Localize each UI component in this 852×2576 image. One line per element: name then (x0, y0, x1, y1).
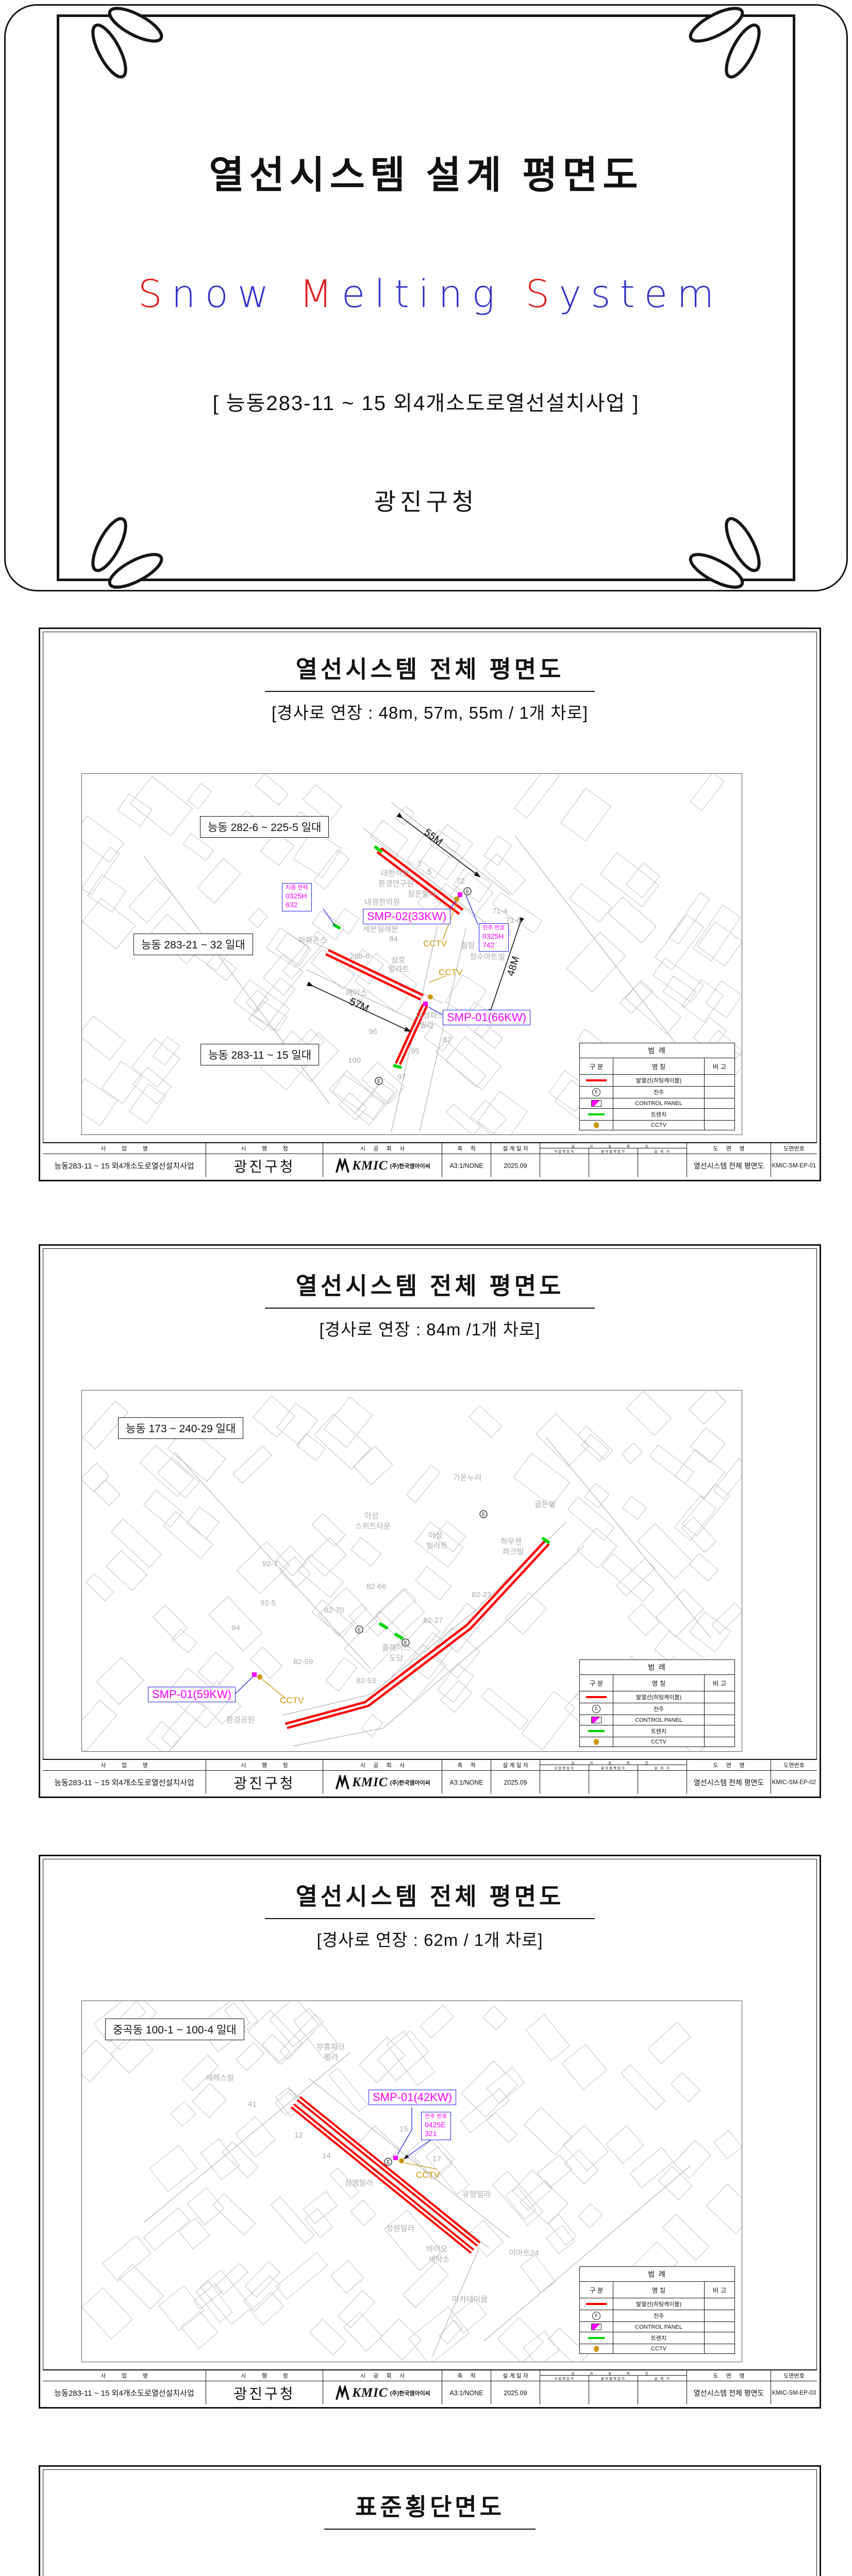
title-block: 사 업 명능동283-11 ~ 15 외4개소도로열선설치사업 시 행 청광진구… (43, 2369, 817, 2404)
control-panel-icon (591, 2324, 602, 2330)
area-label: 중곡동 100-1 ~ 100-4 일대 (105, 2019, 244, 2040)
cctv-symbol (399, 2158, 404, 2163)
map-name: 82-59 (293, 1657, 313, 1666)
subtitle-letter: i (414, 272, 434, 316)
map-name: 빌라트 (388, 963, 409, 974)
map-name: 12 (294, 2131, 303, 2140)
kmic-logo-icon (335, 1158, 350, 1174)
area-label: 능동 282-6 ~ 225-5 일대 (200, 816, 329, 838)
sheet-plan-1: 열선시스템 전체 평면도 [경사로 연장 : 48m, 57m, 55m / 1… (39, 628, 821, 1181)
svg-text:E: E (358, 1628, 361, 1633)
map-name: 삼영빌라 (345, 2177, 373, 2188)
area-label: 능동 283-21 ~ 32 일대 (133, 934, 253, 955)
map-name: 아성 (428, 1530, 443, 1540)
map-name: 이마트24 (509, 2247, 539, 2258)
sheet-title: 열선시스템 전체 평면도 (265, 1878, 595, 1919)
control-panel-icon (591, 1100, 602, 1107)
map-name: 내경한의원 (364, 896, 400, 907)
subtitle-letter: m (672, 272, 719, 316)
subtitle-letter: e (640, 272, 673, 316)
title-block: 사 업 명능동283-11 ~ 15 외4개소도로열선설치사업 시 행 청광진구… (43, 1142, 817, 1177)
smp-label: SMP-01(66KW) (443, 1010, 530, 1025)
title-block: 사 업 명능동283-11 ~ 15 외4개소도로열선설치사업 시 행 청광진구… (43, 1759, 817, 1794)
map-name: 성원빌라 (386, 2223, 414, 2233)
control-panel-symbol (458, 892, 462, 897)
cctv-label: CCTV (439, 968, 462, 978)
map-name: 94 (231, 1623, 240, 1632)
legend-title: 범 례 (580, 1043, 734, 1058)
pole-symbol: E (375, 1077, 382, 1084)
svg-text:E: E (466, 889, 469, 894)
heating-line-icon (586, 1079, 607, 1081)
map-name: 플레이스 (382, 1642, 410, 1653)
map-name: 87 (443, 1036, 452, 1044)
map-name: 97 (397, 1073, 406, 1081)
cover-title: 열선시스템 설계 평면도 (4, 144, 848, 199)
pole-icon: E (592, 2312, 600, 2320)
cctv-symbol (257, 1674, 262, 1680)
trench-icon (588, 2337, 605, 2339)
map-name: 82-66 (366, 1582, 386, 1591)
map-name: 268-6 (350, 952, 370, 961)
map-name: 빌라트 (426, 1540, 447, 1551)
area-label: 능동 283-11 ~ 15 일대 (201, 1044, 319, 1065)
sheet-plan-2: 열선시스템 전체 평면도 [경사로 연장 : 84m /1개 차로] (39, 1244, 821, 1798)
subtitle-letter: n (433, 272, 467, 316)
map-drawing: E E 능동 282-6 ~ 225-5 일대 능동 283-21 ~ 32 일… (81, 773, 742, 1135)
map-name: 15 (399, 2125, 408, 2133)
map-name: 환경연구원 (378, 878, 414, 889)
subtitle-letter: l (370, 272, 390, 316)
map-name: 스위트타운 (355, 1520, 391, 1531)
cover-agency: 광진구청 (4, 483, 848, 517)
map-name: 95 (411, 1047, 420, 1056)
map-drawing: E 중곡동 100-1 ~ 100-4 일대 SMP-01(42KW) 전주 번… (81, 2001, 742, 2362)
legend-title: 범 례 (580, 2267, 734, 2282)
cctv-label: CCTV (416, 2170, 440, 2180)
map-name: 빌라 (324, 2052, 339, 2062)
map-name: 유형빌라 (462, 2189, 491, 2199)
subtitle-letter: g (467, 272, 499, 316)
svg-text:E: E (377, 1079, 380, 1084)
sheet-title: 열선시스템 전체 평면도 (265, 651, 595, 692)
map-name: 세븐일레븐 (363, 923, 398, 934)
pole-icon: E (592, 1088, 600, 1096)
map-name: 96 (369, 1027, 377, 1036)
map-name: 하우젠 (500, 1536, 522, 1547)
smp-label: SMP-01(59KW) (148, 1687, 236, 1702)
sheet-subtitle: [경사로 연장 : 48m, 57m, 55m / 1개 차로] (40, 699, 820, 724)
map-name: 아카데미쿱 (452, 2294, 488, 2304)
map-name: 17 (432, 2155, 441, 2163)
pole-symbol: E (480, 1511, 487, 1518)
map-name: 골든빌 (534, 1499, 556, 1510)
subtitle-letter: e (337, 272, 370, 316)
cctv-icon (594, 1739, 599, 1745)
pole-icon: E (592, 1705, 600, 1713)
sheet-cross-section: 표준횡단면도 (39, 2465, 821, 2576)
control-panel-symbol (423, 1002, 428, 1006)
map-name: 빌라 (420, 1019, 434, 1030)
sheet-title: 열선시스템 전체 평면도 (265, 1267, 595, 1309)
corner-ornament-icon (90, 513, 168, 590)
svg-text:E: E (387, 2160, 390, 2165)
cover-page: 열선시스템 설계 평면도 Snow Melting System [ 능동283… (4, 4, 848, 591)
kmic-logo-icon (335, 2385, 350, 2401)
kmic-logo-icon (335, 1775, 350, 1790)
map-name: 100 (348, 1056, 361, 1065)
heating-cable-lines (291, 2097, 480, 2253)
corner-ornament-icon (90, 6, 168, 83)
map-name: 84 (389, 935, 398, 943)
utility-label: 지중 전력0325H632 (282, 883, 312, 911)
map-name: 파파존스 (298, 935, 327, 945)
map-name: 92-5 (260, 1599, 276, 1607)
map-name: 환경공원 (226, 1714, 255, 1725)
cctv-symbol (428, 994, 433, 999)
map-name: 세탁소 (428, 2253, 449, 2264)
cctv-label: CCTV (423, 939, 447, 949)
map-name: 아성 (364, 1510, 379, 1521)
map-name: 71-4 (492, 907, 508, 916)
pole-symbol: E (385, 2158, 392, 2165)
subtitle-letter: t (390, 272, 414, 316)
control-panel-symbol (393, 2156, 398, 2160)
trench-icon (588, 1113, 605, 1115)
drawing-set-page: 열선시스템 설계 평면도 Snow Melting System [ 능동283… (0, 0, 852, 2576)
subtitle-letter (273, 272, 295, 316)
map-name: 대한석면 (381, 868, 409, 878)
map-name: 가온누리 (453, 1472, 481, 1483)
cover-subtitle: Snow Melting System (4, 272, 848, 316)
cross-section-drawing: "A" 자동 제어함 (43, 2557, 816, 2576)
cctv-icon (594, 1122, 599, 1128)
map-name: 힐탐 (461, 940, 475, 951)
heating-cable-lines (285, 1540, 549, 1728)
heating-line-icon (586, 2303, 607, 2305)
subtitle-letter: n (167, 272, 201, 316)
map-name: 82-27 (423, 1616, 443, 1625)
control-panel-symbol (252, 1672, 257, 1677)
svg-text:E: E (482, 1512, 485, 1517)
map-name: 82-53 (356, 1676, 376, 1685)
subtitle-letter: S (521, 272, 554, 316)
sheet-subtitle: [경사로 연장 : 84m /1개 차로] (40, 1316, 820, 1341)
trench-icon (588, 1730, 605, 1732)
map-name: 정수아트빌 (470, 951, 505, 962)
leader-lines (235, 1677, 285, 1698)
utility-label: 전주 번호0425E321 (421, 2112, 451, 2140)
subtitle-letter: w (233, 272, 274, 316)
map-name: 82-70 (324, 1606, 344, 1615)
heating-line-icon (586, 1696, 607, 1698)
map-name: 41 (248, 2100, 257, 2109)
subtitle-letter: y (554, 272, 586, 316)
trench-marks (379, 1538, 549, 1639)
subtitle-letter: S (133, 272, 167, 316)
map-name: 장운빌라 (408, 888, 436, 899)
smp-label: SMP-01(42KW) (369, 2090, 456, 2105)
sheet-plan-3: 열선시스템 전체 평면도 [경사로 연장 : 62m / 1개 차로] (39, 1855, 821, 2409)
control-panel-icon (591, 1717, 602, 1723)
subtitle-letter: M (295, 272, 337, 316)
corner-ornament-icon (684, 513, 762, 590)
map-name: 92-7 (262, 1560, 278, 1568)
map-name: 14 (322, 2151, 331, 2160)
legend-table: 범 례 구 분명 칭비 고 발열선(히팅케이블) E전주 CONTROL PAN… (579, 2266, 735, 2354)
sheet-subtitle: [경사로 연장 : 62m / 1개 차로] (40, 1926, 820, 1951)
legend-table: 범 례 구 분명 칭비 고 발열선(히팅케이블) E전주 CONTROL PAN… (579, 1659, 735, 1747)
map-name: 5 (427, 868, 431, 876)
legend-title: 범 례 (580, 1660, 734, 1675)
map-name: 72 (456, 877, 465, 886)
subtitle-letter: s (586, 272, 615, 316)
map-name: 3 (417, 859, 421, 868)
cctv-symbol (454, 896, 459, 902)
map-drawing: E E E 능동 173 ~ 240-29 일대 SMP-01(59KW (81, 1390, 742, 1752)
smp-label: SMP-02(33KW) (363, 909, 450, 924)
map-name: 도담 (389, 1652, 404, 1663)
map-name: 부흥파크 (316, 2041, 345, 2052)
subtitle-letter: t (615, 272, 640, 316)
subtitle-letter (499, 272, 521, 316)
pole-symbol: E (464, 888, 471, 895)
map-name: 바이오 (426, 2243, 447, 2254)
map-name: 82-23 (472, 1590, 491, 1599)
pole-symbol: E (356, 1626, 363, 1633)
area-label: 능동 173 ~ 240-29 일대 (118, 1417, 243, 1439)
utility-label: 전주 번호0325H742 (479, 923, 509, 952)
map-name: 파크빌 (503, 1546, 524, 1557)
map-name: 세레스빌 (206, 2072, 234, 2083)
legend-table: 범 례 구 분명 칭비 고 발열선(히팅케이블) E전주 CONTROL PAN… (579, 1043, 735, 1130)
cover-project-name: [ 능동283-11 ~ 15 외4개소도로열선설치사업 ] (4, 386, 848, 416)
cctv-icon (594, 2346, 599, 2352)
sheet-title: 표준횡단면도 (324, 2488, 536, 2530)
cctv-label: CCTV (280, 1696, 304, 1706)
subtitle-letter: o (201, 272, 233, 316)
corner-ornament-icon (684, 6, 762, 83)
